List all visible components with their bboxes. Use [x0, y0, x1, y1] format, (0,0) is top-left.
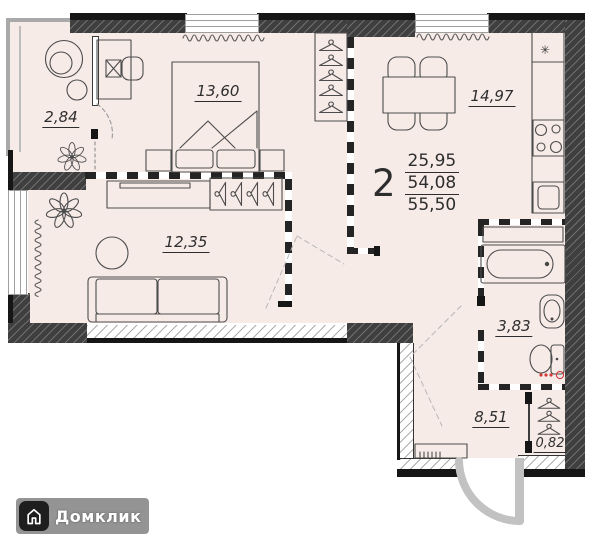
- dashed-wall-kitchen-elbow: [347, 248, 380, 254]
- house-icon: [19, 501, 49, 531]
- living-area-value: 25,95: [405, 151, 460, 173]
- dashed-wall-living: [285, 179, 292, 306]
- living-window: [8, 190, 28, 295]
- bedroom-window: [185, 14, 259, 33]
- wall-bottom-right-cap: [518, 469, 585, 477]
- apartment-area-value: 54,08: [405, 173, 460, 195]
- room-label-living: 12,35: [163, 233, 210, 253]
- room-label-hallway: 8,51: [472, 408, 509, 428]
- wall-bottom-right: [347, 323, 413, 343]
- dashed-bathroom-top: [478, 219, 565, 225]
- dashed-wall-bedroom: [85, 172, 292, 179]
- dashed-bathroom-left-up: [478, 225, 484, 298]
- wall-top-3: [487, 20, 565, 33]
- dashed-wall-kitchen: [347, 37, 354, 248]
- loggia-partition: [92, 36, 99, 106]
- room-label-closet: 0,82: [534, 436, 567, 453]
- wall-bottom-mid: [87, 325, 347, 338]
- loggia-glazing-top: [6, 18, 72, 22]
- room-label-bedroom: 13,60: [195, 82, 242, 102]
- floor-plan: 2,84 13,60 14,97 12,35 3,83 8,51 0,82 ✳ …: [0, 0, 600, 544]
- total-area-value: 55,50: [405, 195, 460, 216]
- loggia-glazing-left: [6, 20, 10, 156]
- domclick-logo: Домклик: [16, 498, 149, 534]
- wall-right-cap: [565, 13, 585, 20]
- room-label-bathroom: 3,83: [495, 317, 532, 337]
- dashed-bathroom-left-low: [478, 330, 484, 384]
- wall-bottom-mid-cap: [87, 338, 347, 343]
- dashed-bathroom-bottom: [478, 384, 565, 390]
- loggia-glazing-inner: [19, 26, 21, 152]
- logo-text: Домклик: [55, 507, 141, 526]
- wall-top-cap1: [70, 13, 187, 20]
- entrance-door: [459, 458, 524, 522]
- closet-partition: [528, 392, 530, 453]
- hallway-wall-left: [400, 343, 414, 460]
- wall-top-2b: [347, 20, 415, 37]
- wall-bottom-left: [8, 323, 87, 343]
- apartment-summary: 2 25,95 54,08 55,50: [372, 151, 459, 216]
- wall-top-1: [70, 20, 185, 33]
- room-label-loggia: 2,84: [42, 108, 79, 128]
- hallway-wall-bottom-cap: [397, 469, 460, 477]
- room-label-kitchen: 14,97: [469, 87, 516, 107]
- rooms-count: 2: [372, 165, 396, 202]
- wall-top-cap2: [257, 13, 415, 20]
- wall-right: [565, 13, 585, 469]
- kitchen-window: [415, 14, 489, 33]
- wall-left-1: [13, 172, 86, 190]
- vent-symbol: ✳: [540, 43, 550, 57]
- closet-wall-bottom: [518, 455, 565, 470]
- wall-left-2: [13, 293, 30, 323]
- wall-top-cap3: [487, 13, 565, 20]
